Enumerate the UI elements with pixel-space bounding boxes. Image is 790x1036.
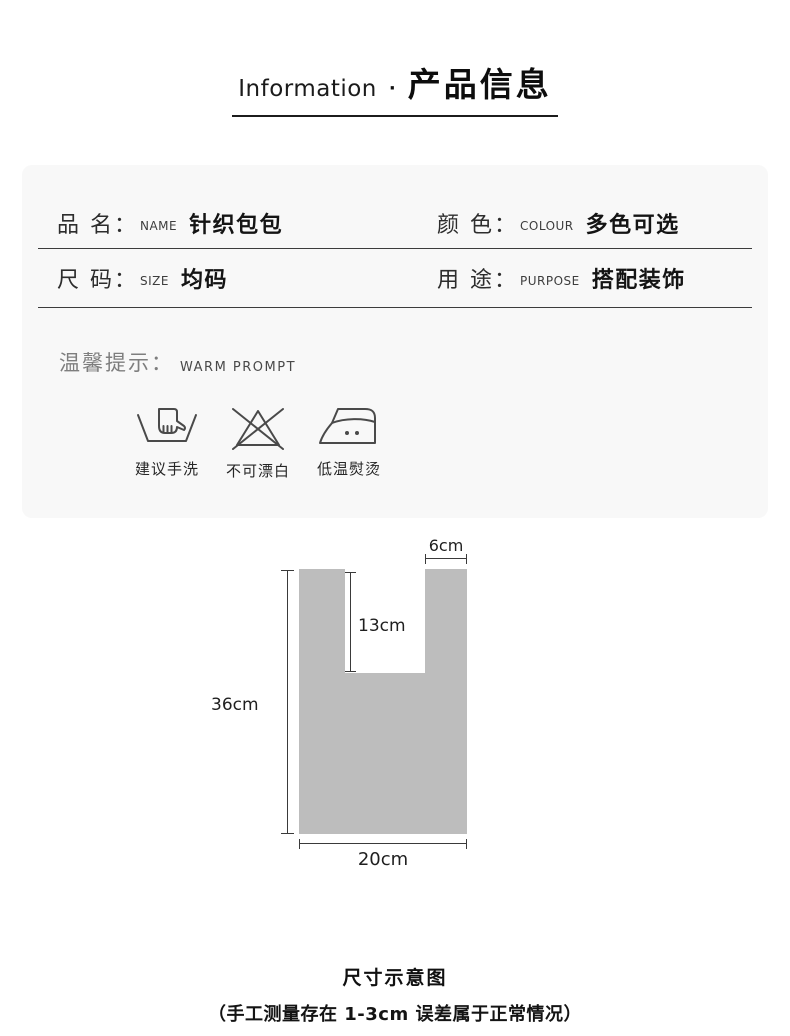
field-size-en: SIZE xyxy=(140,274,169,288)
field-colour-en: COLOUR xyxy=(520,219,574,233)
warm-prompt-en: WARM PROMPT xyxy=(180,360,296,375)
care-iron-low: 低温熨烫 xyxy=(314,402,384,481)
field-name-label: 品 名： xyxy=(57,207,138,239)
field-name: 品 名： NAME 针织包包 xyxy=(38,207,372,248)
bag-height-label: 36cm xyxy=(211,695,259,715)
field-size: 尺 码： SIZE 均码 xyxy=(38,262,372,294)
field-name-value: 针织包包 xyxy=(189,207,283,239)
care-hand-wash: 建议手洗 xyxy=(132,402,202,481)
care-hand-wash-label: 建议手洗 xyxy=(132,458,202,479)
field-size-label: 尺 码： xyxy=(57,262,138,294)
dimension-line-handle xyxy=(350,572,351,672)
field-size-value: 均码 xyxy=(181,262,228,294)
no-bleach-icon xyxy=(226,402,290,452)
footer: 尺寸示意图 （手工测量存在 1-3cm 误差属于正常情况） xyxy=(0,963,790,1026)
page-title-zh: 产品信息 xyxy=(408,65,552,104)
field-purpose: 用 途： PURPOSE 搭配装饰 xyxy=(372,262,752,294)
diagram-caption: 尺寸示意图 xyxy=(0,963,790,990)
handle-depth-label: 13cm xyxy=(358,616,406,636)
dimension-line-height xyxy=(287,570,288,834)
page-title: Information·产品信息 xyxy=(232,58,557,117)
info-row-1: 品 名： NAME 针织包包 颜 色： COLOUR 多色可选 xyxy=(38,165,752,249)
strap-width-label: 6cm xyxy=(425,536,467,555)
care-no-bleach: 不可漂白 xyxy=(223,402,293,481)
info-row-2: 尺 码： SIZE 均码 用 途： PURPOSE 搭配装饰 xyxy=(38,248,752,308)
care-iron-low-label: 低温熨烫 xyxy=(314,458,384,479)
dimension-line-strap xyxy=(425,558,467,559)
product-info-card: 品 名： NAME 针织包包 颜 色： COLOUR 多色可选 尺 码： SIZ… xyxy=(22,165,768,518)
field-colour-label: 颜 色： xyxy=(437,207,518,239)
care-instructions: 建议手洗 不可漂白 xyxy=(132,402,384,481)
field-name-en: NAME xyxy=(140,219,177,233)
measurement-note: （手工测量存在 1-3cm 误差属于正常情况） xyxy=(0,1000,790,1026)
field-purpose-label: 用 途： xyxy=(437,262,518,294)
field-purpose-value: 搭配装饰 xyxy=(592,262,686,294)
field-purpose-en: PURPOSE xyxy=(520,274,580,288)
warm-prompt-zh: 温馨提示： xyxy=(59,347,174,377)
size-diagram: 6cm 13cm 36cm 20cm xyxy=(0,518,790,940)
hand-wash-icon xyxy=(135,402,199,450)
warm-prompt-heading: 温馨提示： WARM PROMPT xyxy=(59,347,296,377)
title-dot: · xyxy=(389,78,396,99)
care-no-bleach-label: 不可漂白 xyxy=(223,460,293,481)
field-colour-value: 多色可选 xyxy=(586,207,680,239)
iron-low-temp-icon xyxy=(317,402,381,450)
bag-silhouette xyxy=(299,569,467,834)
field-colour: 颜 色： COLOUR 多色可选 xyxy=(372,207,752,248)
header: Information·产品信息 xyxy=(0,58,790,117)
dimension-line-width xyxy=(299,843,467,844)
bag-width-label: 20cm xyxy=(299,849,467,870)
page-title-en: Information xyxy=(238,76,377,102)
product-info-page: Information·产品信息 品 名： NAME 针织包包 颜 色： COL… xyxy=(0,0,790,1036)
